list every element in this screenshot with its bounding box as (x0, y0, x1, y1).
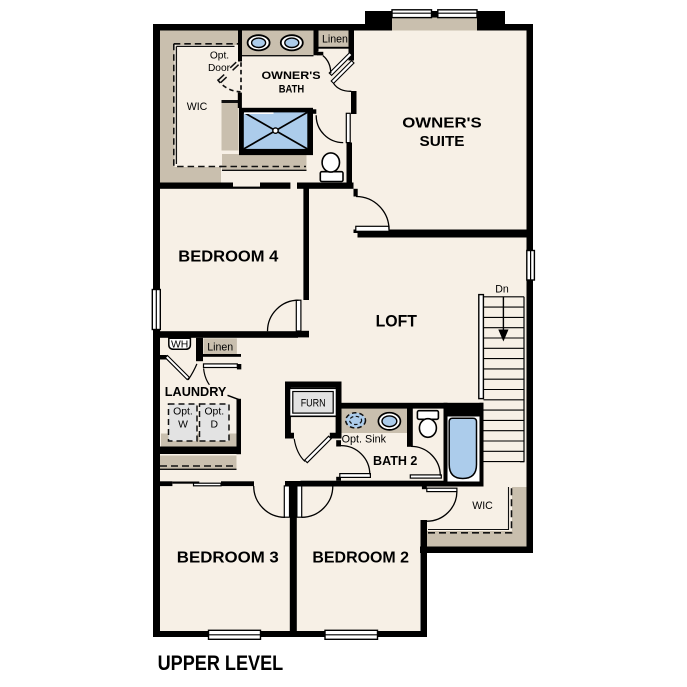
svg-text:WIC: WIC (472, 500, 493, 512)
svg-text:Opt.: Opt. (204, 407, 224, 418)
svg-text:BATH 2: BATH 2 (373, 453, 417, 468)
svg-text:WIC: WIC (187, 101, 208, 113)
svg-text:BEDROOM 3: BEDROOM 3 (177, 550, 279, 567)
svg-text:WH: WH (171, 339, 188, 350)
svg-text:OWNER'S: OWNER'S (402, 116, 482, 132)
svg-text:Opt.: Opt. (210, 51, 229, 62)
svg-text:UPPER LEVEL: UPPER LEVEL (158, 652, 284, 675)
svg-text:FURN: FURN (301, 397, 326, 409)
svg-text:SUITE: SUITE (420, 134, 465, 150)
svg-text:OWNER'S: OWNER'S (262, 70, 321, 82)
svg-text:BEDROOM 4: BEDROOM 4 (178, 249, 278, 266)
svg-text:Door: Door (208, 63, 231, 74)
svg-text:Opt. Sink: Opt. Sink (342, 433, 387, 445)
svg-text:Linen: Linen (207, 342, 233, 354)
svg-text:Dn: Dn (495, 284, 509, 296)
svg-text:Opt.: Opt. (173, 407, 193, 418)
svg-text:W: W (178, 419, 188, 430)
svg-text:D: D (211, 419, 219, 430)
svg-text:LOFT: LOFT (376, 312, 418, 331)
svg-text:BATH: BATH (279, 83, 305, 95)
svg-text:Linen: Linen (322, 34, 348, 46)
svg-text:BEDROOM 2: BEDROOM 2 (312, 550, 409, 567)
svg-text:LAUNDRY: LAUNDRY (165, 384, 227, 399)
